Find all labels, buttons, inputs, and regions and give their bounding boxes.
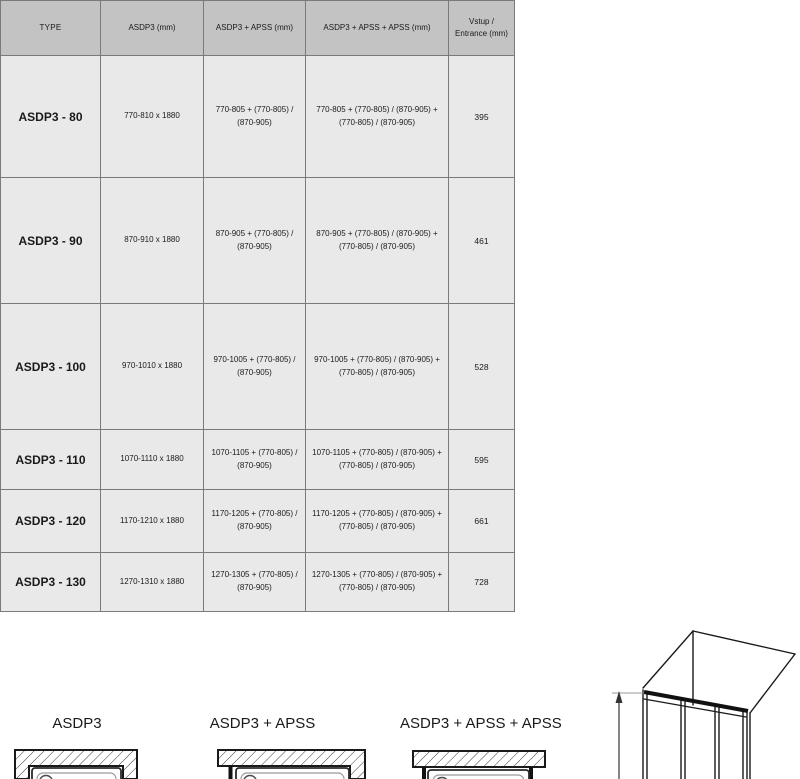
col-header-entrance: Vstup / Entrance (mm) — [449, 1, 515, 56]
cell-asdp3-apss: 1070-1105 + (770-805) / (870-905) — [204, 430, 306, 490]
table-row: ASDP3 - 80 770-810 x 1880 770-805 + (770… — [1, 56, 515, 178]
cell-entrance: 595 — [449, 430, 515, 490]
top-view-diagram-asdp3-apss-apss — [406, 745, 551, 779]
cell-asdp3-apss: 970-1005 + (770-805) / (870-905) — [204, 304, 306, 430]
cell-asdp3-apss-apss: 970-1005 + (770-805) / (870-905) + (770-… — [306, 304, 449, 430]
col-header-type: TYPE — [1, 1, 101, 56]
perspective-drawing-sliding-door — [600, 615, 800, 779]
diagram-label-asdp3-apss: ASDP3 + APSS — [195, 715, 330, 732]
row-type-label: ASDP3 - 120 — [1, 490, 101, 553]
cell-asdp3-apss: 870-905 + (770-805) / (870-905) — [204, 178, 306, 304]
row-type-label: ASDP3 - 100 — [1, 304, 101, 430]
cell-entrance: 528 — [449, 304, 515, 430]
table-header-row: TYPE ASDP3 (mm) ASDP3 + APSS (mm) ASDP3 … — [1, 1, 515, 56]
cell-entrance: 661 — [449, 490, 515, 553]
apss-fixed-panel-left — [422, 767, 426, 779]
cell-entrance: 395 — [449, 56, 515, 178]
row-type-label: ASDP3 - 130 — [1, 553, 101, 612]
cell-asdp3-apss-apss: 1270-1305 + (770-805) / (870-905) + (770… — [306, 553, 449, 612]
cell-asdp3-apss: 770-805 + (770-805) / (870-905) — [204, 56, 306, 178]
col-header-asdp3-apss: ASDP3 + APSS (mm) — [204, 1, 306, 56]
tray-inner-edge — [241, 773, 344, 779]
wall-hatch — [413, 751, 545, 767]
col-header-asdp3: ASDP3 (mm) — [101, 1, 204, 56]
row-type-label: ASDP3 - 90 — [1, 178, 101, 304]
col-header-asdp3-apss-apss: ASDP3 + APSS + APSS (mm) — [306, 1, 449, 56]
cell-asdp3: 1070-1110 x 1880 — [101, 430, 204, 490]
cell-asdp3: 1270-1310 x 1880 — [101, 553, 204, 612]
cell-entrance: 461 — [449, 178, 515, 304]
row-type-label: ASDP3 - 110 — [1, 430, 101, 490]
cell-asdp3-apss: 1170-1205 + (770-805) / (870-905) — [204, 490, 306, 553]
table-row: ASDP3 - 110 1070-1110 x 1880 1070-1105 +… — [1, 430, 515, 490]
dimensions-table: TYPE ASDP3 (mm) ASDP3 + APSS (mm) ASDP3 … — [0, 0, 515, 612]
cell-asdp3-apss-apss: 770-805 + (770-805) / (870-905) + (770-8… — [306, 56, 449, 178]
right-wall-top-edge — [693, 631, 795, 654]
cell-asdp3-apss-apss: 1070-1105 + (770-805) / (870-905) + (770… — [306, 430, 449, 490]
top-view-diagram-asdp3 — [10, 745, 145, 779]
tray-inner-edge — [433, 775, 524, 779]
right-wall-front-edge — [750, 654, 795, 713]
cell-asdp3-apss: 1270-1305 + (770-805) / (870-905) — [204, 553, 306, 612]
diagram-label-asdp3-apss-apss: ASDP3 + APSS + APSS — [400, 715, 550, 732]
cell-asdp3-apss-apss: 1170-1205 + (770-805) / (870-905) + (770… — [306, 490, 449, 553]
cell-entrance: 728 — [449, 553, 515, 612]
cell-asdp3: 770-810 x 1880 — [101, 56, 204, 178]
table-row: ASDP3 - 130 1270-1310 x 1880 1270-1305 +… — [1, 553, 515, 612]
row-type-label: ASDP3 - 80 — [1, 56, 101, 178]
table-row: ASDP3 - 120 1170-1210 x 1880 1170-1205 +… — [1, 490, 515, 553]
table-row: ASDP3 - 100 970-1010 x 1880 970-1005 + (… — [1, 304, 515, 430]
datasheet-page: TYPE ASDP3 (mm) ASDP3 + APSS (mm) ASDP3 … — [0, 0, 800, 779]
diagram-label-asdp3: ASDP3 — [15, 715, 139, 732]
cell-asdp3-apss-apss: 870-905 + (770-805) / (870-905) + (770-8… — [306, 178, 449, 304]
cell-asdp3: 1170-1210 x 1880 — [101, 490, 204, 553]
table-row: ASDP3 - 90 870-910 x 1880 870-905 + (770… — [1, 178, 515, 304]
cell-asdp3: 970-1010 x 1880 — [101, 304, 204, 430]
top-view-diagram-asdp3-apss — [212, 745, 372, 779]
left-wall-top-edge — [643, 631, 693, 688]
cell-asdp3: 870-910 x 1880 — [101, 178, 204, 304]
apss-fixed-panel — [229, 765, 233, 779]
